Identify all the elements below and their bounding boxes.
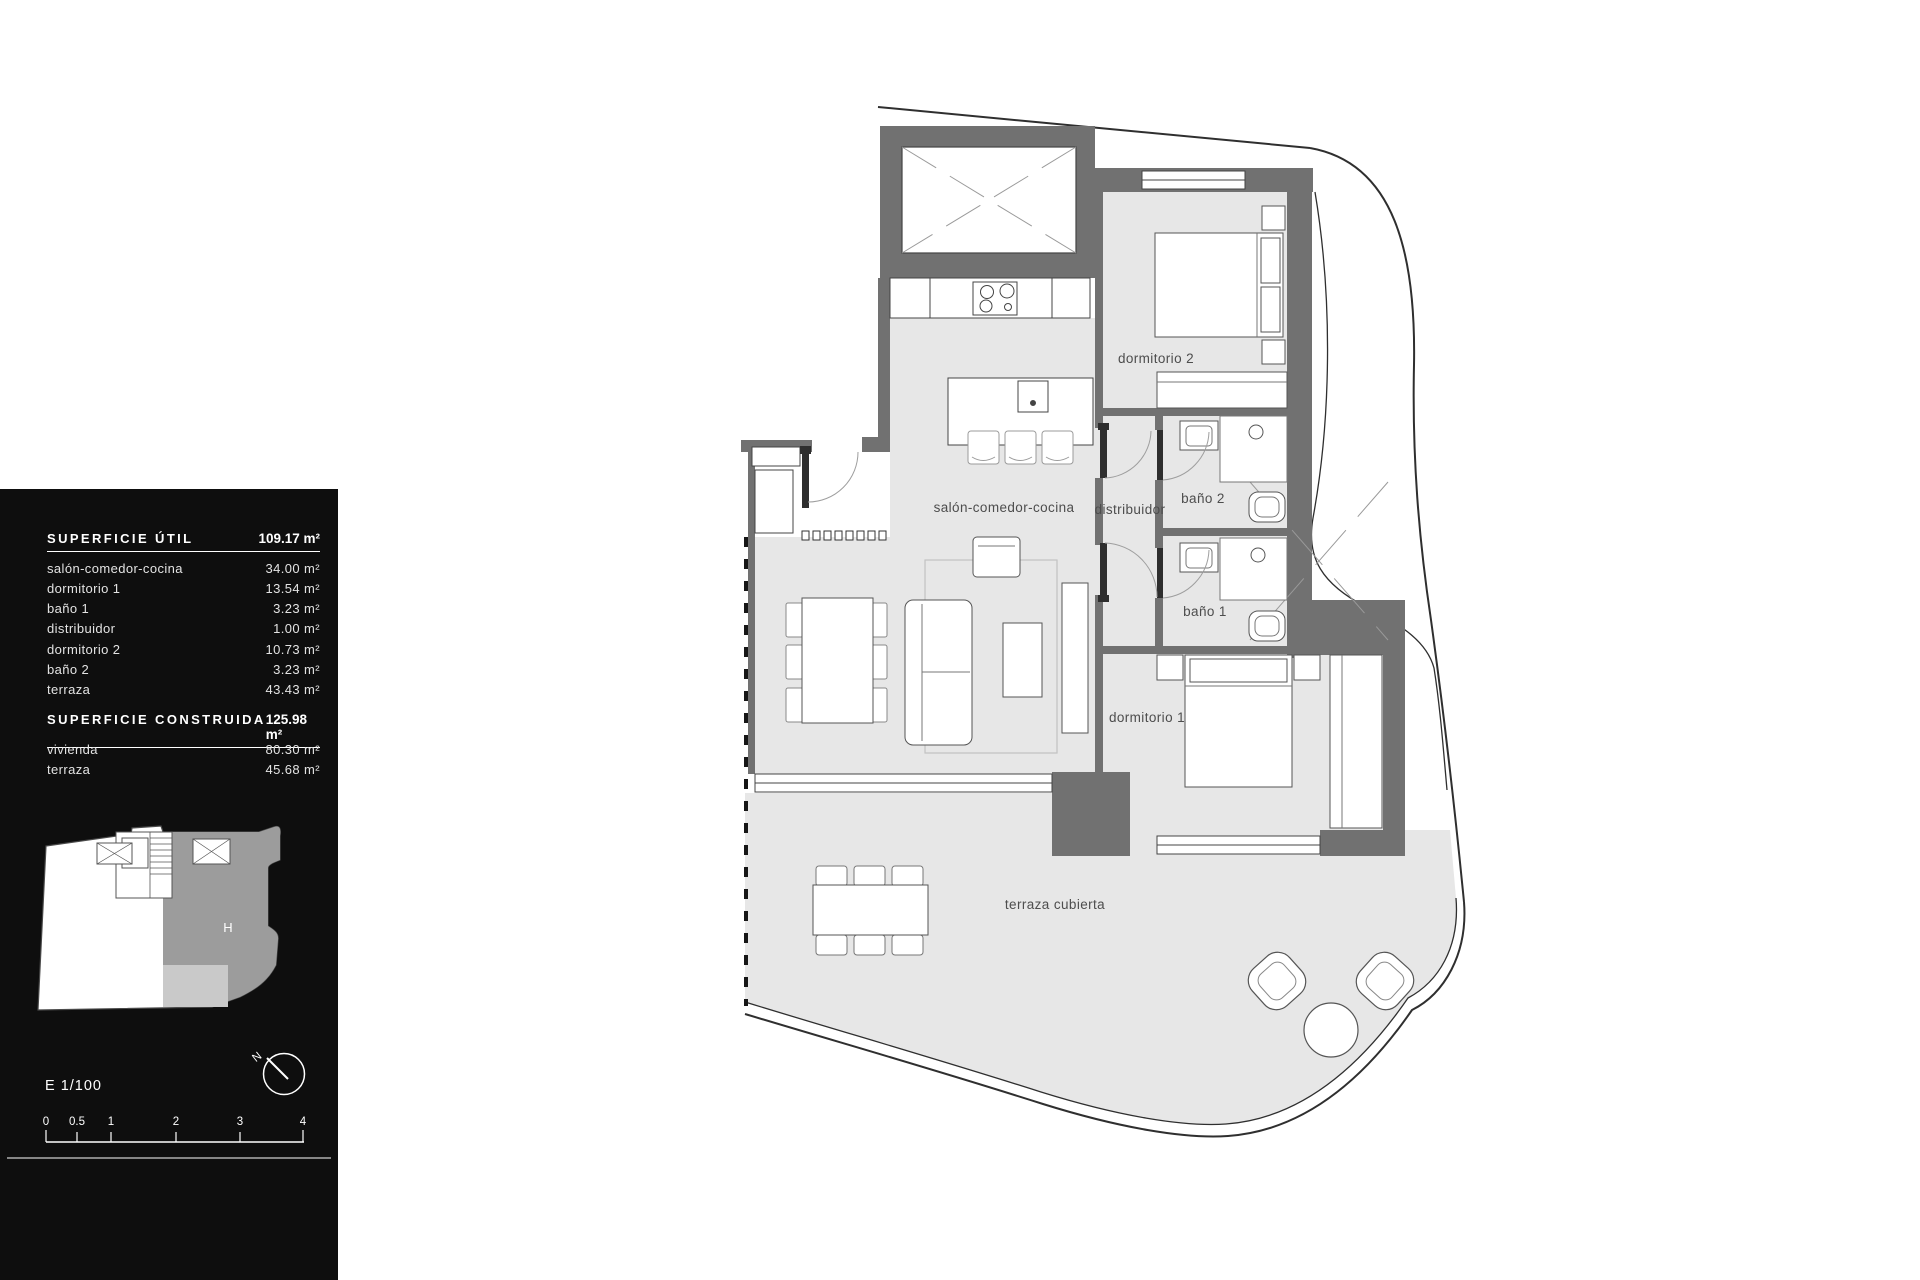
key-plan-stairs [116, 832, 172, 898]
bano1-shower [1220, 538, 1287, 600]
info-panel: SUPERFICIE ÚTIL 109.17 m² salón-comedor-… [0, 489, 338, 1280]
dorm1-wardrobe [1330, 655, 1382, 828]
area-row-value: 34.00 m² [265, 561, 320, 576]
label-terraza: terraza cubierta [1005, 897, 1105, 912]
area-row: terraza43.43 m² [47, 682, 320, 697]
island-sink-icon [1018, 381, 1048, 412]
page: salón-comedor-cocina distribuidor baño 2… [0, 0, 1920, 1280]
area-row-label: vivienda [47, 742, 98, 757]
elevator-shaft [902, 147, 1076, 253]
superficie-util-total: 109.17 m² [258, 531, 320, 546]
key-plan-unit-label: H [223, 920, 232, 935]
area-row-value: 80.30 m² [265, 742, 320, 757]
dorm1-bottom-right-wall [1320, 830, 1405, 856]
area-row: baño 23.23 m² [47, 662, 320, 677]
area-row-value: 3.23 m² [273, 662, 320, 677]
area-row: baño 13.23 m² [47, 601, 320, 616]
north-label: N [250, 1050, 264, 1065]
scale-text: E 1/100 [45, 1078, 102, 1094]
dining-table [802, 598, 873, 723]
dorm1-nightstand [1294, 655, 1320, 680]
sink-tap-icon [1031, 401, 1036, 406]
entry-top-wall-right [862, 437, 890, 452]
lightwell-bottom-wall [1287, 600, 1405, 655]
area-row-label: salón-comedor-cocina [47, 561, 183, 576]
entry-door-arc [808, 452, 858, 502]
dorm2-pillow [1261, 287, 1280, 332]
label-bano1: baño 1 [1183, 604, 1227, 619]
dorm1-nightstand [1157, 655, 1183, 680]
area-row-value: 3.23 m² [273, 601, 320, 616]
scale-tick-label: 4 [300, 1116, 307, 1128]
area-row: dormitorio 113.54 m² [47, 581, 320, 596]
kitchen-left-wall [878, 278, 890, 452]
dorm1-pillow [1190, 659, 1287, 682]
dorm2-nightstand [1262, 340, 1285, 364]
area-row-label: baño 2 [47, 662, 89, 677]
dormitorio2-furniture [1155, 206, 1287, 408]
banos-divider-wall [1155, 528, 1287, 536]
east-wall [1287, 190, 1312, 658]
label-dormitorio2: dormitorio 2 [1118, 351, 1194, 366]
entry-closets [752, 447, 800, 533]
salon-se-wall [1052, 772, 1130, 856]
superficie-util-title: SUPERFICIE ÚTIL [47, 531, 194, 546]
coffee-table [1003, 623, 1042, 697]
partition-salon-dorm2 [1095, 192, 1103, 428]
bano2-left-wall-a [1155, 416, 1163, 430]
area-row-value: 1.00 m² [273, 621, 320, 636]
entry-door-leaf [802, 452, 809, 508]
scale-tick-label: 0 [43, 1116, 49, 1128]
area-row-label: terraza [47, 682, 90, 697]
dorm1-door-leaf [1100, 543, 1107, 597]
tv-unit [1062, 583, 1088, 733]
label-dormitorio1: dormitorio 1 [1109, 710, 1185, 725]
key-plan: H [38, 826, 280, 1010]
label-distribuidor: distribuidor [1095, 502, 1166, 517]
bano1-left-wall [1155, 598, 1163, 646]
partition-salon-dorm1 [1095, 595, 1103, 775]
superficie-construida-total: 125.98 m² [266, 712, 320, 742]
bano2-door-leaf [1157, 430, 1163, 480]
bano1-door-leaf [1157, 548, 1163, 598]
key-plan-unit-terrace [163, 965, 228, 1007]
scale-tick-label: 2 [173, 1116, 179, 1128]
dorm1-top-wall [1095, 646, 1287, 654]
dorm2-pillow [1261, 238, 1280, 283]
area-row: distribuidor1.00 m² [47, 621, 320, 636]
area-row-label: distribuidor [47, 621, 115, 636]
label-bano2: baño 2 [1181, 491, 1225, 506]
area-row: salón-comedor-cocina34.00 m² [47, 561, 320, 576]
dorm2-wardrobe [1157, 372, 1287, 408]
panel-graphics: H E 1/100 N 0 0.5 1 2 [0, 820, 338, 1280]
north-arrow-icon: N [250, 1050, 304, 1094]
distribuidor-door-leaf [1100, 428, 1107, 478]
dorm2-nightstand [1262, 206, 1285, 230]
outdoor-table [813, 885, 928, 935]
superficie-util-header: SUPERFICIE ÚTIL 109.17 m² [47, 531, 320, 552]
area-row: terraza45.68 m² [47, 762, 320, 777]
area-row-value: 13.54 m² [265, 581, 320, 596]
label-salon: salón-comedor-cocina [934, 500, 1075, 515]
area-row-label: terraza [47, 762, 90, 777]
salon-left-wall [748, 452, 755, 774]
round-side-table [1304, 1003, 1358, 1057]
area-row: dormitorio 210.73 m² [47, 642, 320, 657]
scale-bar: 0 0.5 1 2 3 4 [43, 1116, 307, 1142]
scale-tick-label: 0.5 [69, 1116, 85, 1128]
armchair [973, 537, 1020, 577]
dorm2-bottom-wall [1103, 408, 1312, 416]
area-row-label: baño 1 [47, 601, 89, 616]
scale-tick-label: 1 [108, 1116, 114, 1128]
area-row-value: 45.68 m² [265, 762, 320, 777]
area-row-value: 43.43 m² [265, 682, 320, 697]
superficie-construida-title: SUPERFICIE CONSTRUIDA [47, 712, 266, 727]
scale-tick-label: 3 [237, 1116, 243, 1128]
bano2-sink-icon [1186, 426, 1212, 446]
dorm1-right-wall [1383, 655, 1405, 837]
area-row-label: dormitorio 1 [47, 581, 120, 596]
area-row: vivienda80.30 m² [47, 742, 320, 757]
bar-stools [968, 431, 1073, 464]
area-row-label: dormitorio 2 [47, 642, 120, 657]
area-row-value: 10.73 m² [265, 642, 320, 657]
